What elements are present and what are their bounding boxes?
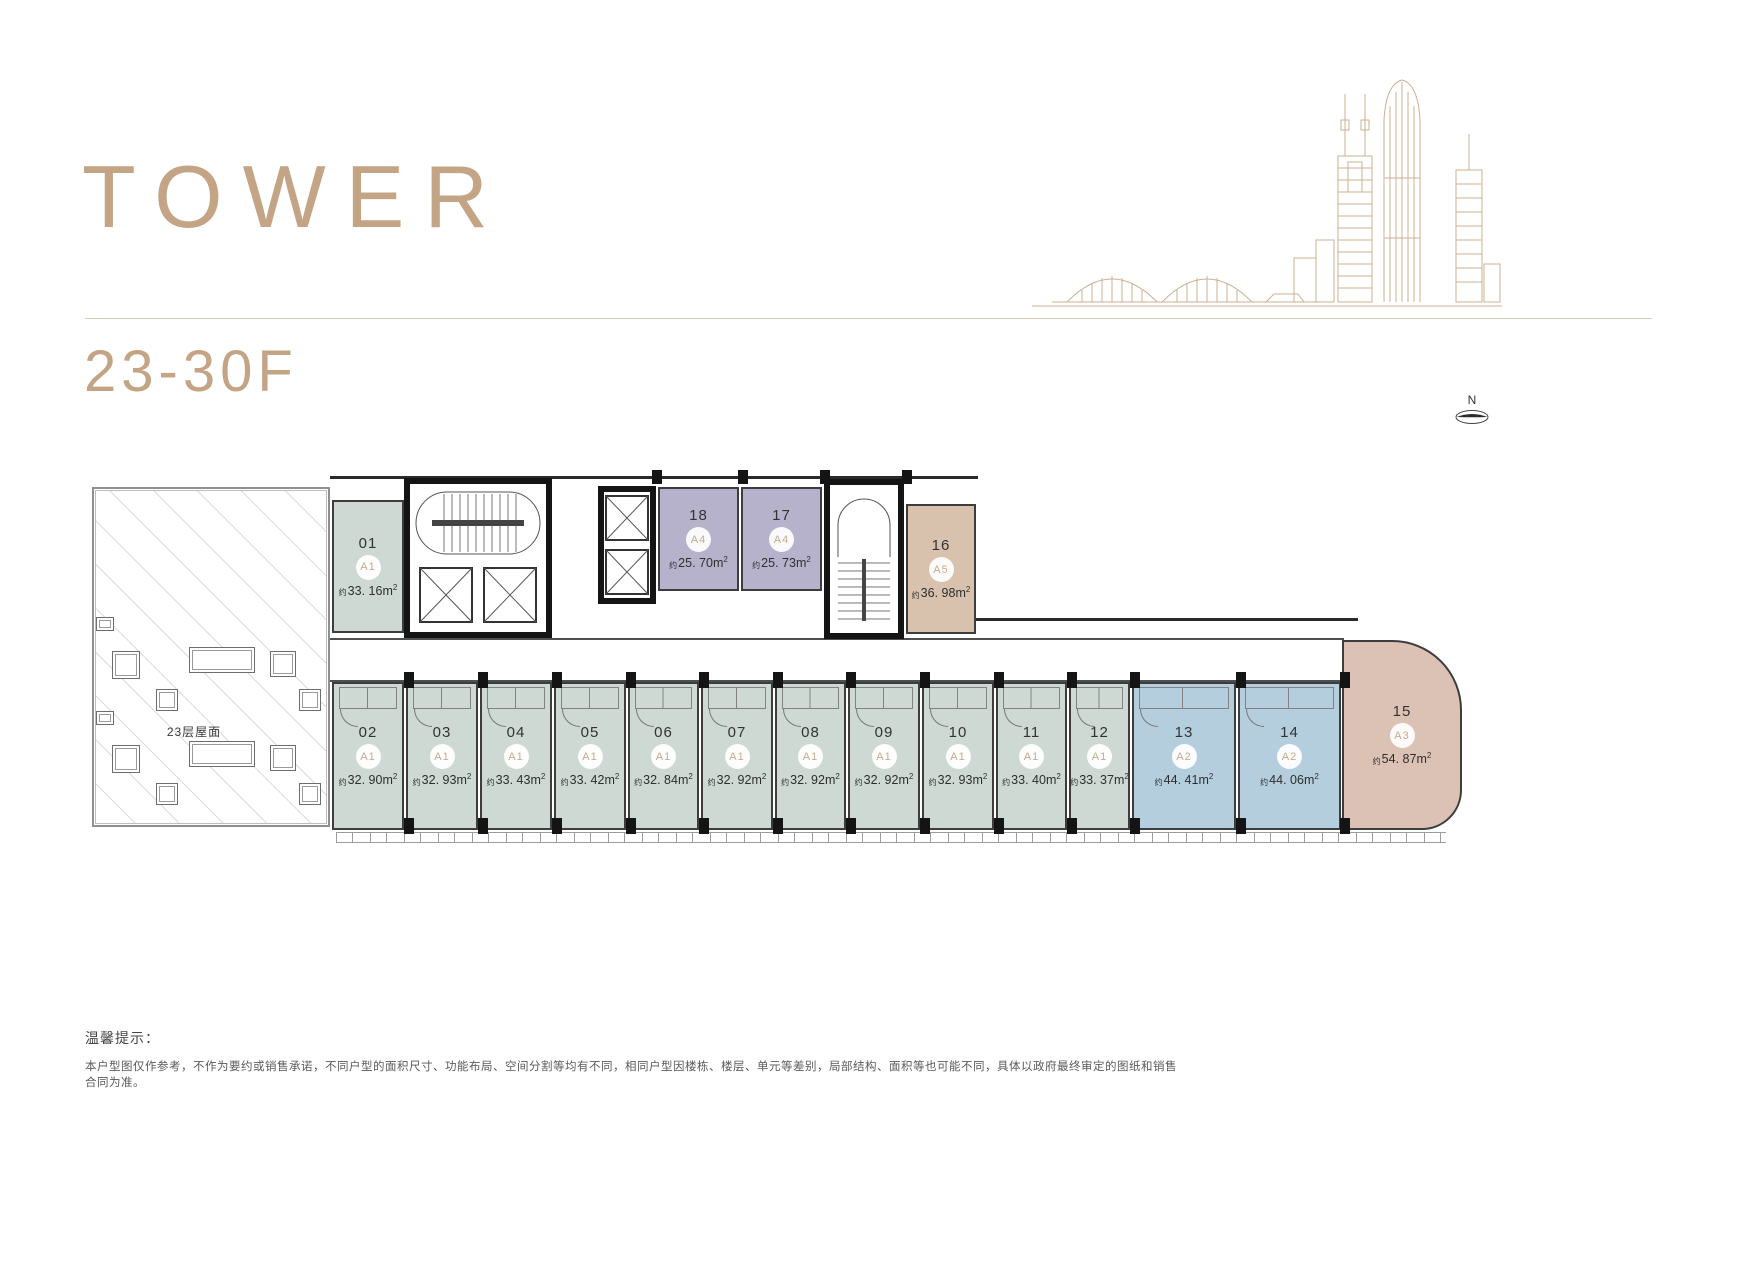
area-sup: 2 — [1427, 751, 1431, 760]
area-value: 32. 90 — [348, 774, 383, 788]
area-value: 33. 16 — [348, 584, 383, 598]
area-approx-prefix: 约 — [487, 778, 495, 787]
area-value: 44. 06 — [1269, 774, 1304, 788]
area-approx-prefix: 约 — [634, 778, 642, 787]
unit-number: 02 — [359, 724, 378, 741]
area-unit: m — [604, 774, 614, 788]
stair-icon — [410, 484, 546, 632]
area-sup: 2 — [762, 772, 766, 781]
area-value: 33. 37 — [1079, 774, 1114, 788]
unit-07: 07 A1 约32. 92m2 — [701, 682, 773, 830]
terrace-skylight — [189, 647, 255, 673]
unit-number: 05 — [581, 724, 600, 741]
terrace-skylight — [299, 689, 321, 711]
area-unit: m — [456, 774, 466, 788]
unit-type-badge: A1 — [651, 744, 676, 769]
unit-type-badge: A4 — [769, 527, 794, 552]
terrace-skylight — [156, 783, 178, 805]
unit-number: 12 — [1090, 724, 1109, 741]
area-unit: m — [1416, 753, 1426, 767]
area-approx-prefix: 约 — [339, 778, 347, 787]
elevator-bank — [598, 486, 656, 604]
area-unit: m — [751, 774, 761, 788]
unit-type-badge: A1 — [946, 744, 971, 769]
elevator-icon — [604, 492, 650, 598]
unit-09: 09 A1 约32. 92m2 — [848, 682, 920, 830]
unit-type-badge: A1 — [356, 555, 381, 580]
unit-number: 17 — [772, 507, 791, 524]
unit-type-badge: A2 — [1172, 744, 1197, 769]
area-approx-prefix: 约 — [669, 561, 677, 570]
notice-disclaimer: 本户型图仅作参考，不作为要约或销售承诺，不同户型的面积尺寸、功能布局、空间分割等… — [85, 1058, 1185, 1090]
area-value: 32. 92 — [864, 774, 899, 788]
column-row-top — [404, 672, 414, 688]
area-unit: m — [1304, 774, 1314, 788]
unit-type-badge: A1 — [725, 744, 750, 769]
unit-04: 04 A1 约33. 43m2 — [480, 682, 552, 830]
area-approx-prefix: 约 — [1155, 778, 1163, 787]
unit-number: 18 — [689, 507, 708, 524]
unit-01: 01 A1 约33. 16m2 — [332, 500, 404, 633]
outer-wall-right-wing — [976, 618, 1358, 621]
window-strip — [336, 832, 1446, 843]
unit-12: 12 A1 约33. 37m2 — [1069, 682, 1130, 830]
unit-area: 约32. 92m2 — [781, 772, 840, 787]
unit-14: 14 A2 约44. 06m2 — [1238, 682, 1341, 830]
area-unit: m — [898, 774, 908, 788]
terrace-skylight — [299, 783, 321, 805]
unit-area: 约32. 90m2 — [339, 772, 398, 787]
unit-15: 15 A3 约54. 87m2 — [1342, 640, 1462, 830]
area-value: 36. 98 — [921, 587, 956, 601]
unit-number: 11 — [1023, 724, 1041, 741]
unit-10: 10 A1 约32. 93m2 — [922, 682, 994, 830]
area-value: 25. 73 — [761, 557, 796, 571]
area-approx-prefix: 约 — [413, 778, 421, 787]
column-row-upper — [652, 470, 662, 484]
unit-area: 约33. 40m2 — [1002, 772, 1061, 787]
corridor — [330, 638, 1344, 682]
area-approx-prefix: 约 — [339, 588, 347, 597]
area-value: 32. 93 — [422, 774, 457, 788]
unit-area: 约32. 92m2 — [708, 772, 767, 787]
area-unit: m — [678, 774, 688, 788]
unit-11: 11 A1 约33. 40m2 — [996, 682, 1067, 830]
unit-16: 16 A5 约36. 98m2 — [906, 504, 976, 634]
column-row-bottom — [404, 818, 414, 834]
area-value: 33. 42 — [570, 774, 605, 788]
area-value: 25. 70 — [678, 557, 713, 571]
unit-number: 09 — [875, 724, 894, 741]
area-approx-prefix: 约 — [752, 561, 760, 570]
area-value: 54. 87 — [1382, 753, 1417, 767]
area-approx-prefix: 约 — [929, 778, 937, 787]
unit-number: 04 — [507, 724, 526, 741]
unit-area: 约33. 43m2 — [487, 772, 546, 787]
unit-06: 06 A1 约32. 84m2 — [628, 682, 699, 830]
unit-number: 03 — [433, 724, 452, 741]
unit-area: 约54. 87m2 — [1373, 751, 1432, 766]
unit-number: 01 — [359, 535, 378, 552]
unit-type-badge: A1 — [798, 744, 823, 769]
unit-type-badge: A2 — [1277, 744, 1302, 769]
area-sup: 2 — [1314, 772, 1318, 781]
area-unit: m — [972, 774, 982, 788]
unit-number: 10 — [949, 724, 968, 741]
area-sup: 2 — [983, 772, 987, 781]
stair-icon — [830, 485, 898, 633]
unit-number: 15 — [1393, 703, 1412, 720]
unit-area: 约33. 42m2 — [561, 772, 620, 787]
area-unit: m — [955, 587, 965, 601]
area-approx-prefix: 约 — [781, 778, 789, 787]
area-sup: 2 — [1124, 772, 1128, 781]
unit-13: 13 A2 约44. 41m2 — [1132, 682, 1236, 830]
unit-17: 17 A4 约25. 73m2 — [741, 487, 822, 591]
area-approx-prefix: 约 — [561, 778, 569, 787]
area-unit: m — [713, 557, 723, 571]
area-value: 32. 92 — [790, 774, 825, 788]
unit-02: 02 A1 约32. 90m2 — [332, 682, 404, 830]
terrace-skylight — [156, 689, 178, 711]
unit-type-badge: A1 — [504, 744, 529, 769]
area-sup: 2 — [1209, 772, 1213, 781]
area-approx-prefix: 约 — [708, 778, 716, 787]
area-sup: 2 — [723, 555, 727, 564]
unit-area: 约32. 93m2 — [929, 772, 988, 787]
area-value: 44. 41 — [1164, 774, 1199, 788]
area-unit: m — [825, 774, 835, 788]
unit-05: 05 A1 约33. 42m2 — [554, 682, 626, 830]
terrace-fixture — [96, 711, 114, 725]
unit-area: 约32. 92m2 — [855, 772, 914, 787]
terrace-fixture — [96, 617, 114, 631]
unit-area: 约32. 84m2 — [634, 772, 693, 787]
area-sup: 2 — [393, 772, 397, 781]
area-approx-prefix: 约 — [1260, 778, 1268, 787]
area-unit: m — [1114, 774, 1124, 788]
unit-area: 约25. 73m2 — [752, 555, 811, 570]
terrace-label: 23层屋面 — [114, 723, 274, 740]
terrace-skylight — [112, 745, 140, 773]
area-value: 32. 93 — [938, 774, 973, 788]
unit-type-badge: A1 — [356, 744, 381, 769]
stair-core — [824, 479, 904, 639]
unit-area: 约36. 98m2 — [912, 585, 971, 600]
terrace-skylight — [189, 741, 255, 767]
area-value: 32. 84 — [643, 774, 678, 788]
unit-type-badge: A5 — [929, 557, 954, 582]
unit-type-badge: A1 — [430, 744, 455, 769]
area-approx-prefix: 约 — [1002, 778, 1010, 787]
stair-elevator-core — [404, 478, 552, 638]
unit-type-badge: A1 — [1087, 744, 1112, 769]
unit-type-badge: A1 — [872, 744, 897, 769]
terrace-skylight — [270, 651, 296, 677]
terrace-roof-area: 23层屋面 — [92, 487, 330, 827]
area-value: 32. 92 — [717, 774, 752, 788]
terrace-skylight — [112, 651, 140, 679]
area-unit: m — [382, 774, 392, 788]
area-sup: 2 — [541, 772, 545, 781]
notice-title: 温馨提示： — [85, 1028, 160, 1048]
unit-08: 08 A1 约32. 92m2 — [775, 682, 846, 830]
unit-number: 13 — [1175, 724, 1194, 741]
area-unit: m — [796, 557, 806, 571]
area-sup: 2 — [966, 585, 970, 594]
unit-area: 约32. 93m2 — [413, 772, 472, 787]
area-value: 33. 40 — [1011, 774, 1046, 788]
unit-number: 14 — [1280, 724, 1299, 741]
unit-number: 07 — [728, 724, 747, 741]
area-value: 33. 43 — [496, 774, 531, 788]
unit-type-badge: A1 — [578, 744, 603, 769]
area-unit: m — [1198, 774, 1208, 788]
unit-number: 16 — [932, 537, 951, 554]
area-unit: m — [530, 774, 540, 788]
unit-area: 约44. 06m2 — [1260, 772, 1319, 787]
area-sup: 2 — [1056, 772, 1060, 781]
area-sup: 2 — [615, 772, 619, 781]
unit-type-badge: A4 — [686, 527, 711, 552]
area-unit: m — [382, 584, 392, 598]
area-sup: 2 — [806, 555, 810, 564]
unit-03: 03 A1 约32. 93m2 — [406, 682, 478, 830]
unit-type-badge: A1 — [1019, 744, 1044, 769]
unit-number: 06 — [654, 724, 673, 741]
area-approx-prefix: 约 — [1373, 757, 1381, 766]
area-sup: 2 — [688, 772, 692, 781]
unit-area: 约33. 16m2 — [339, 583, 398, 598]
unit-type-badge: A3 — [1390, 723, 1415, 748]
unit-number: 08 — [801, 724, 820, 741]
area-sup: 2 — [393, 583, 397, 592]
unit-area: 约44. 41m2 — [1155, 772, 1214, 787]
unit-area: 约25. 70m2 — [669, 555, 728, 570]
unit-area: 约33. 37m2 — [1070, 772, 1129, 787]
area-approx-prefix: 约 — [912, 591, 920, 600]
area-approx-prefix: 约 — [855, 778, 863, 787]
area-sup: 2 — [909, 772, 913, 781]
area-unit: m — [1046, 774, 1056, 788]
area-sup: 2 — [467, 772, 471, 781]
area-approx-prefix: 约 — [1070, 778, 1078, 787]
terrace-skylight — [270, 745, 296, 771]
area-sup: 2 — [835, 772, 839, 781]
unit-18: 18 A4 约25. 70m2 — [658, 487, 739, 591]
